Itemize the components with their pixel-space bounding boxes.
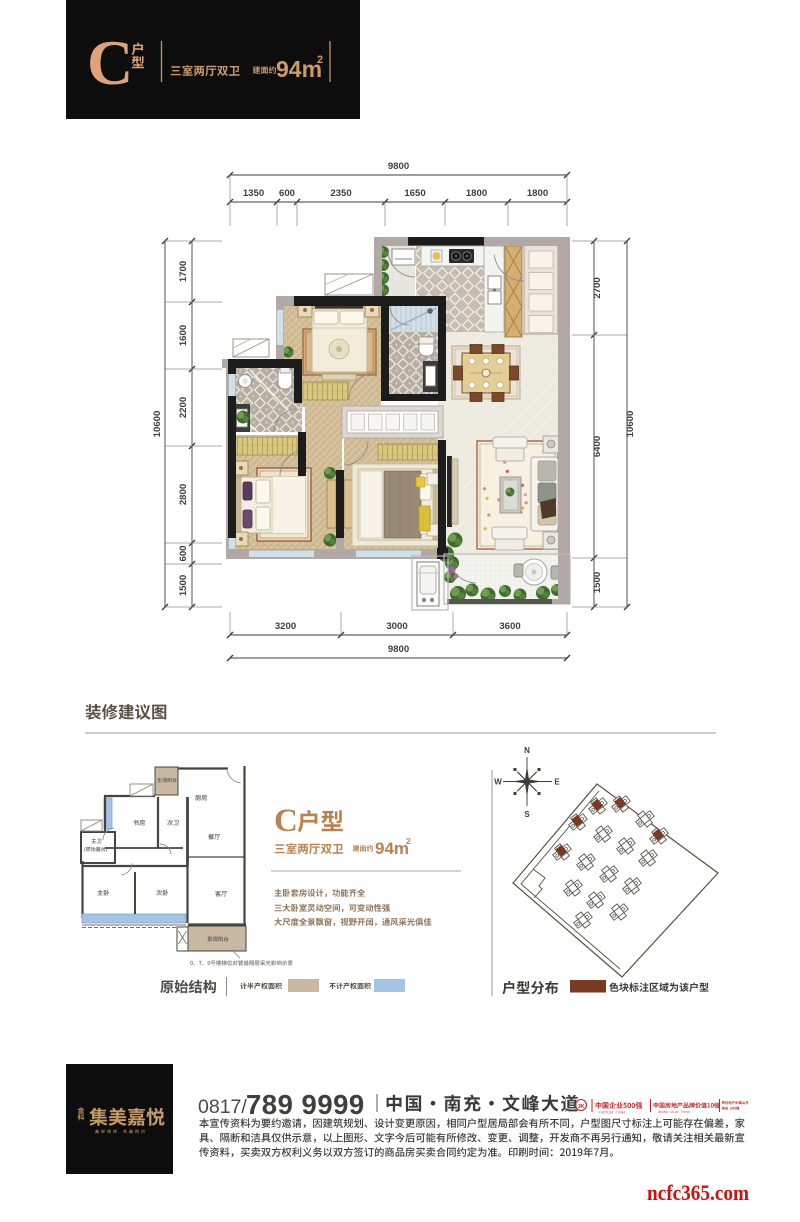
svg-text:1500: 1500 (592, 572, 603, 593)
svg-text:S: S (524, 810, 530, 819)
svg-text:E: E (554, 778, 560, 787)
svg-text:2800: 2800 (178, 484, 189, 505)
svg-text:1500: 1500 (178, 575, 189, 596)
svg-text:1800: 1800 (527, 188, 548, 199)
svg-text:10600: 10600 (152, 411, 163, 438)
svg-text:1800: 1800 (466, 188, 487, 199)
svg-text:600: 600 (178, 545, 189, 561)
svg-text:6400: 6400 (592, 436, 603, 457)
svg-text:9800: 9800 (388, 161, 409, 172)
svg-text:2350: 2350 (330, 188, 351, 199)
svg-text:W: W (494, 778, 502, 787)
svg-text:94m: 94m (276, 56, 322, 82)
svg-text:JK: JK (577, 1104, 584, 1110)
svg-text:10600: 10600 (625, 411, 636, 438)
svg-text:1350: 1350 (243, 188, 264, 199)
svg-text:1700: 1700 (178, 261, 189, 282)
svg-text:3200: 3200 (275, 621, 296, 632)
svg-text:94m: 94m (375, 839, 409, 858)
svg-text:2200: 2200 (178, 397, 189, 418)
svg-text:9800: 9800 (388, 644, 409, 655)
svg-text:600: 600 (279, 188, 295, 199)
svg-text:N: N (524, 746, 530, 755)
svg-text:1650: 1650 (404, 188, 425, 199)
svg-text:C: C (274, 803, 298, 839)
svg-text:2: 2 (406, 836, 411, 846)
svg-text:0817/: 0817/ (198, 1096, 247, 1118)
svg-text:2: 2 (317, 54, 323, 66)
svg-text:3600: 3600 (499, 621, 520, 632)
svg-text:1600: 1600 (178, 325, 189, 346)
svg-text:C: C (87, 27, 133, 98)
svg-text:ncfc365.com: ncfc365.com (647, 1180, 749, 1205)
svg-text:3000: 3000 (386, 621, 407, 632)
svg-text:2700: 2700 (592, 277, 603, 298)
svg-text:789 9999: 789 9999 (246, 1089, 365, 1120)
